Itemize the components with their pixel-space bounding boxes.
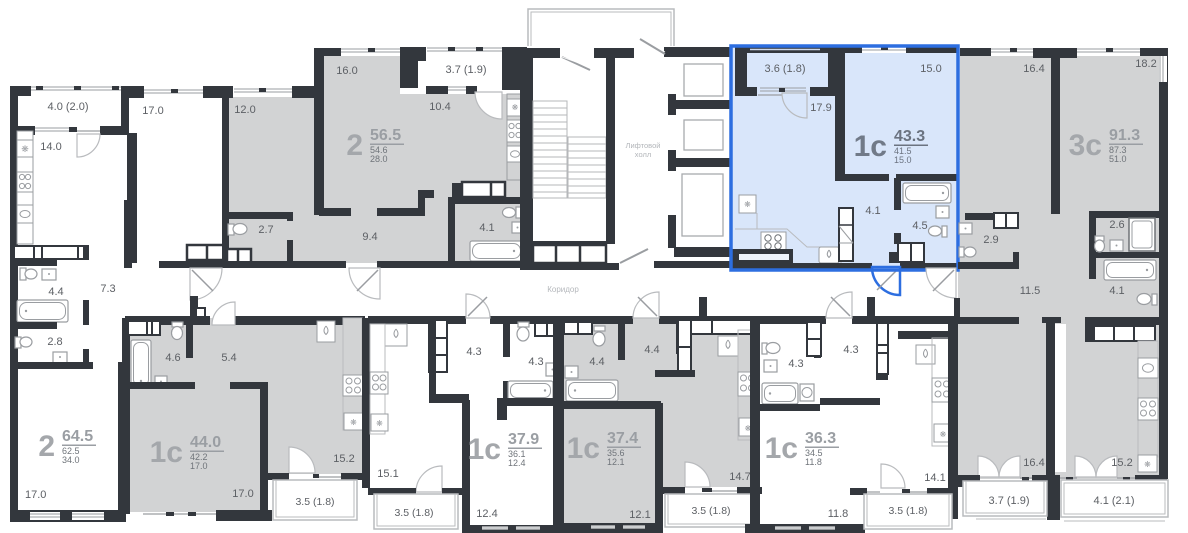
svg-text:1с: 1с xyxy=(765,432,798,465)
svg-text:3.5 (1.8): 3.5 (1.8) xyxy=(394,507,433,519)
svg-text:51.0: 51.0 xyxy=(1109,154,1127,164)
svg-text:4.3: 4.3 xyxy=(788,358,803,370)
svg-text:1с: 1с xyxy=(468,433,501,466)
svg-text:11.5: 11.5 xyxy=(1020,285,1041,297)
svg-text:4.5: 4.5 xyxy=(912,220,927,232)
svg-text:14.0: 14.0 xyxy=(40,141,61,153)
svg-text:4.1: 4.1 xyxy=(1109,285,1124,297)
svg-text:4.0 (2.0): 4.0 (2.0) xyxy=(48,101,89,113)
svg-text:14.7: 14.7 xyxy=(729,471,750,483)
svg-text:❋: ❋ xyxy=(376,419,383,428)
svg-text:2: 2 xyxy=(346,129,363,162)
svg-text:17.0: 17.0 xyxy=(232,488,253,500)
svg-text:15.1: 15.1 xyxy=(377,468,398,480)
svg-text:4.4: 4.4 xyxy=(644,344,659,356)
svg-text:2.9: 2.9 xyxy=(983,234,998,246)
svg-text:15.2: 15.2 xyxy=(333,453,354,465)
svg-text:14.1: 14.1 xyxy=(924,472,945,484)
svg-text:37.4: 37.4 xyxy=(607,430,638,447)
svg-text:17.0: 17.0 xyxy=(25,489,46,501)
svg-text:4.3: 4.3 xyxy=(466,346,481,358)
svg-text:2.6: 2.6 xyxy=(1109,219,1124,231)
svg-text:1с: 1с xyxy=(150,436,183,469)
svg-text:3.5 (1.8): 3.5 (1.8) xyxy=(888,505,927,517)
svg-text:❋: ❋ xyxy=(744,200,751,209)
svg-text:4.6: 4.6 xyxy=(165,352,180,364)
svg-text:43.3: 43.3 xyxy=(894,128,925,145)
svg-text:2.7: 2.7 xyxy=(258,224,273,236)
svg-text:7.3: 7.3 xyxy=(100,283,115,295)
svg-text:Лифтовой: Лифтовой xyxy=(626,141,661,150)
svg-text:18.2: 18.2 xyxy=(1135,58,1156,70)
svg-text:11.8: 11.8 xyxy=(828,508,849,520)
svg-text:15.2: 15.2 xyxy=(1111,457,1132,469)
svg-text:4.1: 4.1 xyxy=(865,205,880,217)
svg-text:9.4: 9.4 xyxy=(362,231,377,243)
svg-text:4.4: 4.4 xyxy=(589,356,604,368)
svg-text:12.1: 12.1 xyxy=(607,457,625,467)
svg-text:4.1: 4.1 xyxy=(479,222,494,234)
svg-text:4.4: 4.4 xyxy=(48,286,63,298)
svg-text:16.4: 16.4 xyxy=(1023,63,1044,75)
svg-text:56.5: 56.5 xyxy=(370,127,401,144)
svg-text:3с: 3с xyxy=(1069,129,1102,162)
svg-text:12.4: 12.4 xyxy=(476,508,497,520)
svg-text:❋: ❋ xyxy=(512,103,519,112)
svg-text:44.0: 44.0 xyxy=(190,434,221,451)
svg-text:16.4: 16.4 xyxy=(1023,457,1044,469)
svg-text:15.0: 15.0 xyxy=(920,63,941,75)
svg-text:37.9: 37.9 xyxy=(508,431,539,448)
svg-text:4.1 (2.1): 4.1 (2.1) xyxy=(1094,495,1135,507)
svg-text:2: 2 xyxy=(38,430,55,463)
svg-text:12.4: 12.4 xyxy=(508,458,526,468)
svg-text:3.5 (1.8): 3.5 (1.8) xyxy=(295,496,334,508)
svg-text:холл: холл xyxy=(635,150,651,159)
svg-text:12.0: 12.0 xyxy=(234,104,255,116)
svg-text:17.9: 17.9 xyxy=(810,102,831,114)
svg-text:3.7 (1.9): 3.7 (1.9) xyxy=(446,64,487,76)
svg-text:91.3: 91.3 xyxy=(1109,127,1140,144)
svg-text:3.7 (1.9): 3.7 (1.9) xyxy=(989,495,1030,507)
svg-text:36.3: 36.3 xyxy=(805,430,836,447)
svg-text:❋: ❋ xyxy=(940,430,947,439)
svg-text:3.6 (1.8): 3.6 (1.8) xyxy=(765,63,806,75)
svg-text:17.0: 17.0 xyxy=(190,461,208,471)
svg-text:34.0: 34.0 xyxy=(62,455,80,465)
svg-text:15.0: 15.0 xyxy=(894,155,912,165)
svg-text:17.0: 17.0 xyxy=(142,105,163,117)
svg-text:2.8: 2.8 xyxy=(47,336,62,348)
svg-text:11.8: 11.8 xyxy=(805,457,822,467)
svg-text:64.5: 64.5 xyxy=(62,428,93,445)
svg-text:❋: ❋ xyxy=(21,144,29,154)
svg-text:12.1: 12.1 xyxy=(629,509,650,521)
svg-text:10.4: 10.4 xyxy=(429,101,450,113)
svg-text:❋: ❋ xyxy=(1144,460,1151,469)
svg-text:4.3: 4.3 xyxy=(843,344,858,356)
svg-text:Коридор: Коридор xyxy=(547,285,579,294)
svg-text:28.0: 28.0 xyxy=(370,154,388,164)
svg-text:16.0: 16.0 xyxy=(336,65,357,77)
svg-text:4.3: 4.3 xyxy=(528,356,543,368)
svg-text:❋: ❋ xyxy=(350,418,357,427)
svg-text:1с: 1с xyxy=(567,432,600,465)
svg-text:5.4: 5.4 xyxy=(221,352,236,364)
svg-text:3.5 (1.8): 3.5 (1.8) xyxy=(691,505,730,517)
svg-text:1с: 1с xyxy=(854,130,887,163)
